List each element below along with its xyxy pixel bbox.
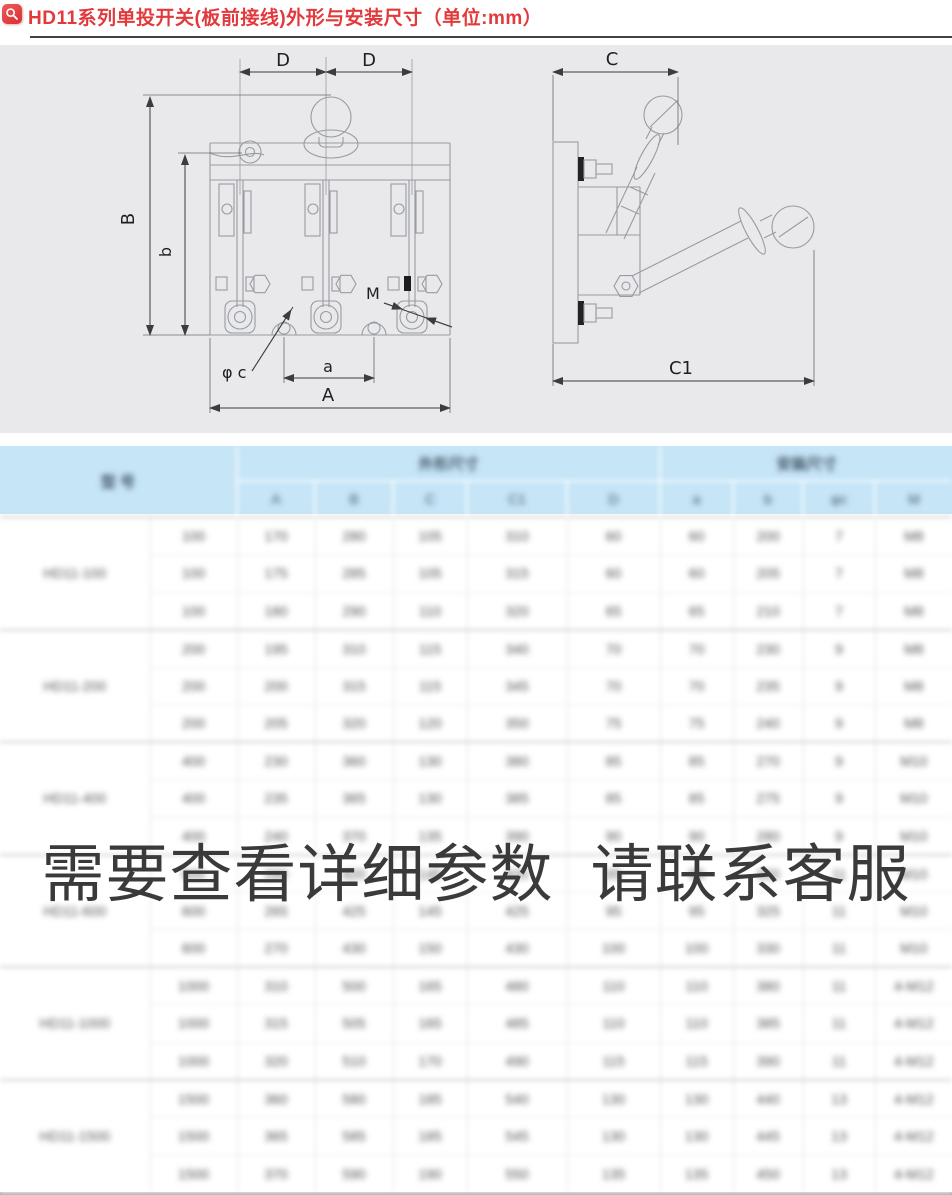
spec-cell: 430 bbox=[315, 930, 393, 968]
spec-cell: 200 bbox=[150, 705, 237, 743]
spec-cell: 9 bbox=[803, 667, 875, 705]
dim-label-a: a bbox=[323, 357, 333, 376]
col-header-model: 型 号 bbox=[0, 446, 237, 517]
spec-cell: 310 bbox=[315, 630, 393, 668]
model-cell: HD11-100 bbox=[0, 517, 150, 630]
spec-cell: 175 bbox=[237, 555, 315, 593]
spec-cell: 1000 bbox=[150, 967, 237, 1005]
spec-cell: 100 bbox=[660, 930, 733, 968]
front-view bbox=[210, 57, 450, 335]
spec-cell: 315 bbox=[315, 667, 393, 705]
spec-cell: 330 bbox=[733, 930, 803, 968]
spec-cell: 130 bbox=[393, 742, 467, 780]
spec-cell: 210 bbox=[733, 592, 803, 630]
spec-cell: 4-M12 bbox=[875, 1005, 952, 1043]
magnifier-icon bbox=[2, 4, 22, 24]
spec-cell: M8 bbox=[875, 517, 952, 555]
spec-cell: 9 bbox=[803, 742, 875, 780]
spec-cell: M8 bbox=[875, 667, 952, 705]
dimension-diagram: D D B b A a φ c M bbox=[0, 45, 952, 433]
spec-cell: 4-M12 bbox=[875, 1042, 952, 1080]
spec-cell: 1000 bbox=[150, 1005, 237, 1043]
spec-cell: 490 bbox=[467, 1042, 567, 1080]
spec-cell: 270 bbox=[733, 742, 803, 780]
spec-cell: M10 bbox=[875, 930, 952, 968]
spec-cell: 360 bbox=[315, 742, 393, 780]
spec-cell: 320 bbox=[237, 1042, 315, 1080]
spec-cell: 70 bbox=[660, 630, 733, 668]
spec-cell: 115 bbox=[393, 630, 467, 668]
spec-cell: 13 bbox=[803, 1080, 875, 1118]
spec-cell: 540 bbox=[467, 1080, 567, 1118]
spec-cell: 320 bbox=[467, 592, 567, 630]
spec-cell: 110 bbox=[567, 967, 660, 1005]
spec-cell: 200 bbox=[150, 667, 237, 705]
spec-cell: 400 bbox=[150, 780, 237, 818]
spec-cell: 115 bbox=[567, 1042, 660, 1080]
spec-cell: 135 bbox=[567, 1155, 660, 1193]
spec-cell: 270 bbox=[237, 930, 315, 968]
spec-cell: 11 bbox=[803, 930, 875, 968]
spec-cell: 600 bbox=[150, 930, 237, 968]
col-header-C: C bbox=[393, 481, 467, 517]
spec-cell: 205 bbox=[237, 705, 315, 743]
spec-cell: 200 bbox=[733, 517, 803, 555]
spec-cell: 345 bbox=[467, 667, 567, 705]
spec-cell: 350 bbox=[467, 705, 567, 743]
spec-cell: 130 bbox=[567, 1117, 660, 1155]
title-divider bbox=[30, 36, 952, 38]
spec-cell: 165 bbox=[393, 967, 467, 1005]
spec-cell: 280 bbox=[315, 517, 393, 555]
spec-cell: 105 bbox=[393, 555, 467, 593]
spec-table-zone: 型 号 外形尺寸 安装尺寸 A B C C1 D a b φc M HD11-1… bbox=[0, 446, 952, 1195]
model-cell: HD11-1000 bbox=[0, 967, 150, 1080]
spec-cell: 60 bbox=[660, 555, 733, 593]
spec-cell: 120 bbox=[393, 705, 467, 743]
spec-cell: M8 bbox=[875, 555, 952, 593]
spec-cell: 195 bbox=[237, 630, 315, 668]
spec-cell: 390 bbox=[733, 1042, 803, 1080]
spec-cell: 150 bbox=[393, 930, 467, 968]
col-header-B: B bbox=[315, 481, 393, 517]
spec-cell: 170 bbox=[393, 1042, 467, 1080]
col-header-phi-c: φc bbox=[803, 481, 875, 517]
spec-cell: 310 bbox=[237, 967, 315, 1005]
spec-cell: 450 bbox=[733, 1155, 803, 1193]
spec-cell: 510 bbox=[315, 1042, 393, 1080]
spec-cell: 480 bbox=[467, 967, 567, 1005]
dim-label-C1: C1 bbox=[669, 358, 693, 379]
group-header-outline-dims: 外形尺寸 bbox=[237, 446, 660, 481]
col-header-M: M bbox=[875, 481, 952, 517]
spec-cell: 185 bbox=[393, 1117, 467, 1155]
spec-cell: 235 bbox=[733, 667, 803, 705]
spec-cell: 85 bbox=[567, 742, 660, 780]
spec-cell: 230 bbox=[237, 742, 315, 780]
table-row: HD11-15001500360580185540130130440134-M1… bbox=[0, 1080, 952, 1118]
spec-cell: 500 bbox=[315, 967, 393, 1005]
spec-cell: 11 bbox=[803, 967, 875, 1005]
spec-cell: 230 bbox=[733, 630, 803, 668]
spec-cell: 200 bbox=[150, 630, 237, 668]
spec-cell: 85 bbox=[660, 742, 733, 780]
spec-cell: 115 bbox=[660, 1042, 733, 1080]
spec-cell: 110 bbox=[567, 1005, 660, 1043]
spec-cell: 105 bbox=[393, 517, 467, 555]
spec-cell: 11 bbox=[803, 1042, 875, 1080]
spec-cell: 235 bbox=[237, 780, 315, 818]
spec-cell: 370 bbox=[237, 1155, 315, 1193]
spec-cell: 310 bbox=[467, 517, 567, 555]
spec-cell: 110 bbox=[393, 592, 467, 630]
spec-cell: 275 bbox=[733, 780, 803, 818]
table-row: HD11-40040023036013038085852709M10 bbox=[0, 742, 952, 780]
spec-cell: 1500 bbox=[150, 1117, 237, 1155]
spec-cell: 130 bbox=[660, 1117, 733, 1155]
dim-label-C: C bbox=[606, 49, 619, 70]
spec-cell: 545 bbox=[467, 1117, 567, 1155]
spec-cell: 110 bbox=[660, 967, 733, 1005]
spec-cell: 380 bbox=[467, 742, 567, 780]
spec-cell: 9 bbox=[803, 705, 875, 743]
spec-cell: 205 bbox=[733, 555, 803, 593]
spec-cell: 340 bbox=[467, 630, 567, 668]
spec-cell: 7 bbox=[803, 555, 875, 593]
spec-cell: M8 bbox=[875, 592, 952, 630]
dim-label-b: b bbox=[156, 247, 175, 257]
spec-cell: 60 bbox=[567, 517, 660, 555]
spec-cell: 365 bbox=[315, 780, 393, 818]
spec-cell: 400 bbox=[150, 742, 237, 780]
front-view-dimensions: D D B b A a φ c M bbox=[118, 50, 452, 413]
model-cell: HD11-200 bbox=[0, 630, 150, 743]
dim-label-B: B bbox=[118, 213, 139, 225]
spec-cell: 170 bbox=[237, 517, 315, 555]
spec-cell: 100 bbox=[150, 592, 237, 630]
spec-cell: M10 bbox=[875, 742, 952, 780]
spec-cell: 85 bbox=[660, 780, 733, 818]
group-header-mounting-dims: 安装尺寸 bbox=[660, 446, 952, 481]
dim-label-phi-c: φ c bbox=[222, 363, 246, 382]
spec-cell: 100 bbox=[150, 555, 237, 593]
spec-cell: 385 bbox=[467, 780, 567, 818]
spec-cell: 100 bbox=[567, 930, 660, 968]
table-row: HD11-10010017028010531060602007M8 bbox=[0, 517, 952, 555]
spec-cell: 590 bbox=[315, 1155, 393, 1193]
spec-cell: 75 bbox=[567, 705, 660, 743]
dim-label-A: A bbox=[322, 385, 335, 406]
title-bar: HD11系列单投开关(板前接线)外形与安装尺寸（单位:mm） bbox=[0, 0, 952, 45]
spec-cell: 380 bbox=[733, 967, 803, 1005]
spec-cell: 7 bbox=[803, 592, 875, 630]
spec-cell: 11 bbox=[803, 1005, 875, 1043]
dim-label-d-right: D bbox=[362, 50, 376, 71]
table-row: HD11-10001000310500165480110110380114-M1… bbox=[0, 967, 952, 1005]
spec-cell: 365 bbox=[237, 1117, 315, 1155]
spec-cell: 550 bbox=[467, 1155, 567, 1193]
spec-cell: 135 bbox=[660, 1155, 733, 1193]
spec-cell: 4-M12 bbox=[875, 1117, 952, 1155]
spec-cell: 115 bbox=[393, 667, 467, 705]
spec-cell: 70 bbox=[567, 630, 660, 668]
col-header-C1: C1 bbox=[467, 481, 567, 517]
spec-cell: 13 bbox=[803, 1155, 875, 1193]
col-header-D: D bbox=[567, 481, 660, 517]
spec-cell: 360 bbox=[237, 1080, 315, 1118]
spec-cell: 430 bbox=[467, 930, 567, 968]
switch-drawing: D D B b A a φ c M bbox=[0, 45, 952, 433]
spec-cell: 505 bbox=[315, 1005, 393, 1043]
spec-cell: 445 bbox=[733, 1117, 803, 1155]
spec-cell: 60 bbox=[660, 517, 733, 555]
spec-cell: 240 bbox=[733, 705, 803, 743]
spec-cell: 85 bbox=[567, 780, 660, 818]
col-header-b: b bbox=[733, 481, 803, 517]
spec-cell: 110 bbox=[660, 1005, 733, 1043]
dim-label-d-left: D bbox=[276, 50, 290, 71]
spec-cell: 585 bbox=[315, 1117, 393, 1155]
spec-cell: 580 bbox=[315, 1080, 393, 1118]
side-view bbox=[553, 96, 814, 343]
spec-cell: 4-M12 bbox=[875, 1080, 952, 1118]
spec-cell: 4-M12 bbox=[875, 967, 952, 1005]
spec-cell: 7 bbox=[803, 517, 875, 555]
spec-cell: 9 bbox=[803, 630, 875, 668]
watermark-text: 需要查看详细参数 请联系客服 bbox=[0, 824, 952, 915]
spec-cell: 320 bbox=[315, 705, 393, 743]
spec-cell: M10 bbox=[875, 780, 952, 818]
model-cell: HD11-1500 bbox=[0, 1080, 150, 1193]
spec-cell: 180 bbox=[237, 592, 315, 630]
spec-table: 型 号 外形尺寸 安装尺寸 A B C C1 D a b φc M HD11-1… bbox=[0, 446, 952, 1192]
spec-cell: 190 bbox=[393, 1155, 467, 1193]
spec-cell: 65 bbox=[567, 592, 660, 630]
spec-cell: 1000 bbox=[150, 1042, 237, 1080]
spec-cell: 130 bbox=[393, 780, 467, 818]
spec-cell: 1500 bbox=[150, 1155, 237, 1193]
dim-label-M: M bbox=[366, 284, 380, 303]
spec-cell: 440 bbox=[733, 1080, 803, 1118]
spec-cell: 130 bbox=[660, 1080, 733, 1118]
spec-cell: 385 bbox=[733, 1005, 803, 1043]
spec-cell: 100 bbox=[150, 517, 237, 555]
spec-cell: M8 bbox=[875, 705, 952, 743]
spec-cell: 290 bbox=[315, 592, 393, 630]
spec-cell: 70 bbox=[660, 667, 733, 705]
spec-cell: 60 bbox=[567, 555, 660, 593]
spec-cell: M8 bbox=[875, 630, 952, 668]
spec-cell: 9 bbox=[803, 780, 875, 818]
spec-cell: 285 bbox=[315, 555, 393, 593]
spec-cell: 75 bbox=[660, 705, 733, 743]
spec-cell: 13 bbox=[803, 1117, 875, 1155]
spec-cell: 130 bbox=[567, 1080, 660, 1118]
col-header-A: A bbox=[237, 481, 315, 517]
spec-cell: 315 bbox=[237, 1005, 315, 1043]
spec-cell: 200 bbox=[237, 667, 315, 705]
spec-cell: 70 bbox=[567, 667, 660, 705]
spec-cell: 485 bbox=[467, 1005, 567, 1043]
col-header-a: a bbox=[660, 481, 733, 517]
spec-cell: 165 bbox=[393, 1005, 467, 1043]
spec-cell: 1500 bbox=[150, 1080, 237, 1118]
spec-cell: 185 bbox=[393, 1080, 467, 1118]
page-title: HD11系列单投开关(板前接线)外形与安装尺寸（单位:mm） bbox=[28, 3, 542, 30]
spec-cell: 4-M12 bbox=[875, 1155, 952, 1193]
table-row: HD11-20020019531011534070702309M8 bbox=[0, 630, 952, 668]
spec-cell: 65 bbox=[660, 592, 733, 630]
spec-cell: 315 bbox=[467, 555, 567, 593]
